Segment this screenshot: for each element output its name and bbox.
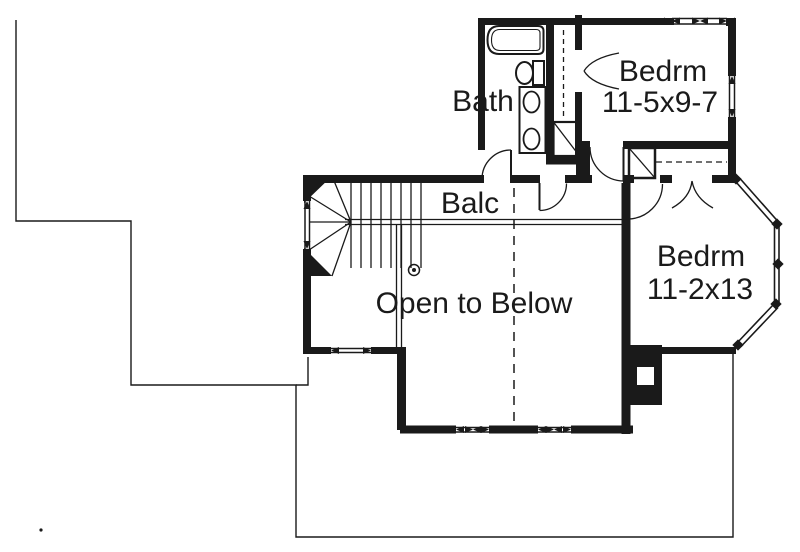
stray-ink-dot	[39, 528, 42, 531]
toilet	[516, 61, 544, 85]
open-to-below-label: Open to Below	[376, 287, 573, 320]
bath-door	[482, 150, 511, 179]
floor-plan-page: Bath Bedrm 11-5x9-7 Balc Bedrm 11-2x13 O…	[0, 0, 800, 552]
floor-plan-svg: Bath Bedrm 11-5x9-7 Balc Bedrm 11-2x13 O…	[0, 0, 800, 552]
bedroom1-size: 11-5x9-7	[602, 86, 718, 119]
bedroom2-closet-doors	[672, 181, 713, 208]
staircase	[309, 176, 421, 276]
balcony-railing	[345, 220, 622, 351]
bedroom2-label: Bedrm	[657, 240, 745, 273]
bedroom1-label: Bedrm	[619, 55, 707, 88]
vanity-double-sink	[520, 87, 546, 153]
bedroom1-door	[590, 147, 624, 181]
bedroom1-closet-doors	[584, 53, 619, 89]
bedroom2-size: 11-2x13	[647, 273, 753, 306]
labels: Bath Bedrm 11-5x9-7 Balc Bedrm 11-2x13 O…	[376, 55, 753, 320]
balcony-label: Balc	[441, 187, 499, 220]
bath-label: Bath	[452, 85, 514, 118]
chimney	[626, 345, 662, 405]
hall-door	[540, 183, 567, 211]
stair-treads	[351, 183, 421, 268]
bedroom2-door	[628, 184, 663, 219]
chimney-flue	[637, 367, 654, 385]
bathtub	[488, 26, 544, 54]
